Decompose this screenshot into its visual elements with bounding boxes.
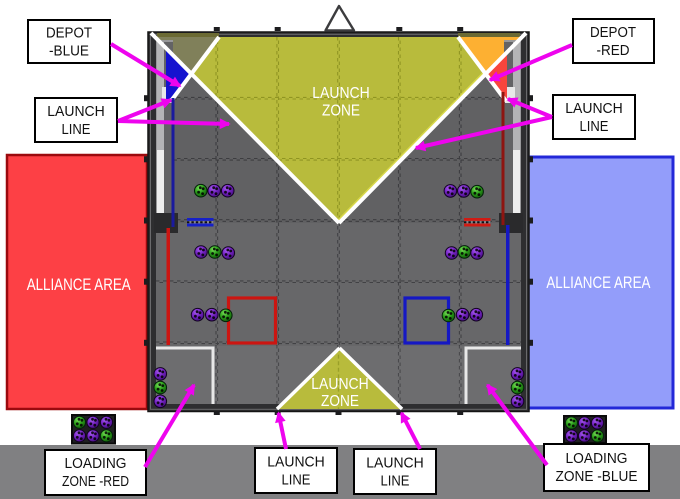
svg-text:LINE: LINE — [62, 121, 91, 138]
svg-text:LAUNCH: LAUNCH — [366, 455, 424, 472]
svg-text:LAUNCH: LAUNCH — [267, 454, 325, 471]
svg-text:LAUNCH: LAUNCH — [311, 376, 369, 393]
svg-text:ZONE: ZONE — [322, 103, 360, 120]
svg-text:LOADING: LOADING — [566, 450, 628, 467]
svg-text:LAUNCH: LAUNCH — [565, 100, 623, 117]
svg-text:LAUNCH: LAUNCH — [312, 85, 370, 102]
svg-text:ALLIANCE AREA: ALLIANCE AREA — [27, 275, 132, 294]
svg-text:LINE: LINE — [381, 473, 410, 490]
svg-text:ZONE -RED: ZONE -RED — [62, 473, 129, 490]
svg-text:LINE: LINE — [282, 472, 311, 489]
svg-text:DEPOT: DEPOT — [46, 25, 92, 42]
svg-text:-BLUE: -BLUE — [49, 43, 89, 60]
svg-text:ALLIANCE AREA: ALLIANCE AREA — [546, 273, 651, 292]
svg-text:ZONE: ZONE — [321, 393, 359, 410]
svg-text:ZONE -BLUE: ZONE -BLUE — [556, 468, 638, 485]
svg-text:LOADING: LOADING — [65, 455, 127, 472]
svg-text:LAUNCH: LAUNCH — [47, 103, 105, 120]
svg-text:DEPOT: DEPOT — [590, 24, 636, 41]
svg-text:LINE: LINE — [580, 118, 609, 135]
svg-text:-RED: -RED — [597, 42, 630, 59]
